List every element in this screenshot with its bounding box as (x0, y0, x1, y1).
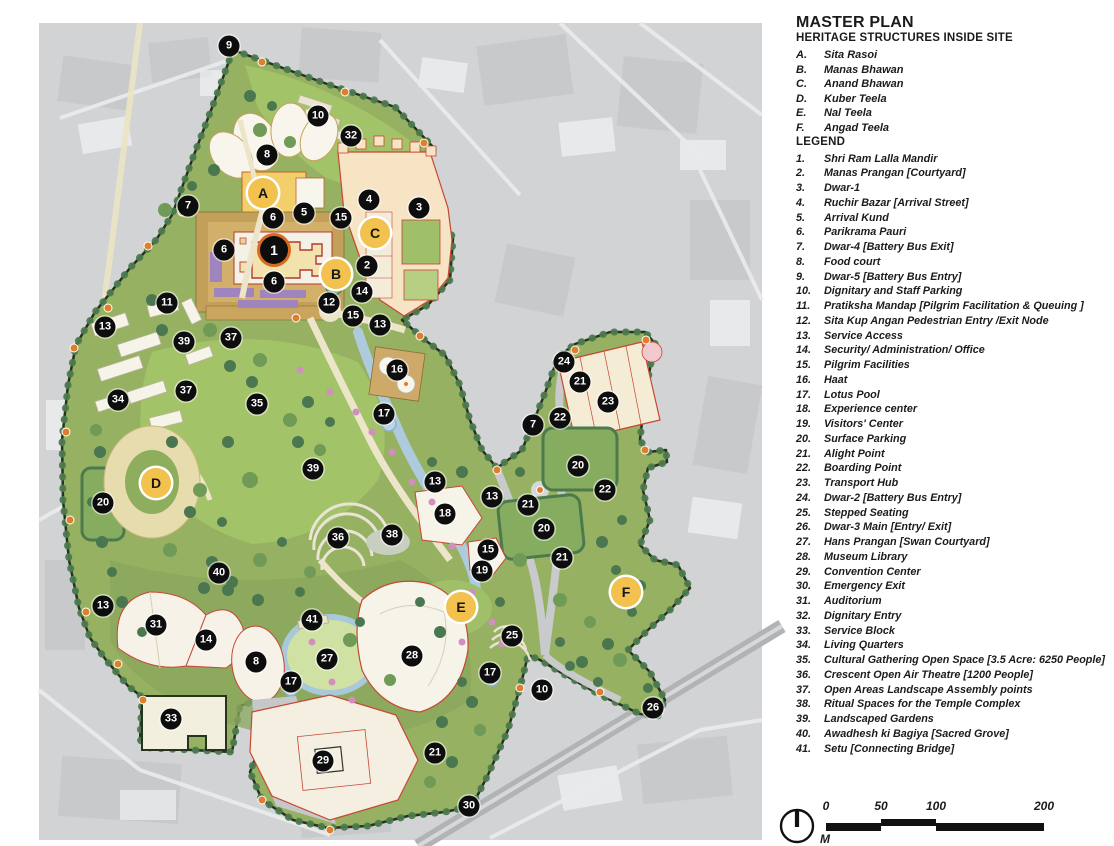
heritage-list: A. Sita Rasoi B. Manas Bhawan C. Anand B… (796, 48, 1114, 136)
legend-item: 17. Lotus Pool (796, 388, 1114, 403)
legend-item: 30. Emergency Exit (796, 579, 1114, 594)
map-marker: 32 (341, 126, 362, 147)
map-marker: 12 (319, 293, 340, 314)
legend-item: 16. Haat (796, 373, 1114, 388)
map-marker: 35 (247, 394, 268, 415)
legend-item: 38. Ritual Spaces for the Temple Complex (796, 697, 1114, 712)
legend-item: 2. Manas Prangan [Courtyard] (796, 166, 1114, 181)
map-marker: 25 (502, 626, 523, 647)
north-arrow-icon (777, 804, 817, 844)
master-plan-drawing (0, 0, 790, 846)
map-marker: 6 (214, 240, 235, 261)
map-marker: 39 (174, 332, 195, 353)
legend-item: 28. Museum Library (796, 550, 1114, 565)
map-marker: 24 (554, 352, 575, 373)
legend-list: 1. Shri Ram Lalla Mandir 2. Manas Pranga… (796, 152, 1114, 757)
legend-item: 21. Alight Point (796, 447, 1114, 462)
map-marker: B (321, 259, 351, 289)
map-marker: E (446, 592, 476, 622)
legend-item: 10. Dignitary and Staff Parking (796, 284, 1114, 299)
map-marker: 14 (196, 630, 217, 651)
map-marker: 2 (357, 256, 378, 277)
scale-tick-label: 0 (823, 799, 830, 813)
map-marker: 15 (331, 208, 352, 229)
map-marker: 19 (472, 561, 493, 582)
map-marker: 27 (317, 649, 338, 670)
legend-item: 14. Security/ Administration/ Office (796, 343, 1114, 358)
legend-item: 32. Dignitary Entry (796, 609, 1114, 624)
scale-tick-label: 100 (926, 799, 946, 813)
legend-item: 8. Food court (796, 255, 1114, 270)
map-marker: 8 (257, 145, 278, 166)
legend-item: 25. Stepped Seating (796, 506, 1114, 521)
legend-item: 34. Living Quarters (796, 638, 1114, 653)
scale-bar: 050100200 M (826, 799, 1056, 845)
heritage-heading: HERITAGE STRUCTURES INSIDE SITE (796, 32, 1114, 44)
map-marker: 36 (328, 528, 349, 549)
legend-item: 27. Hans Prangan [Swan Courtyard] (796, 535, 1114, 550)
heritage-section: HERITAGE STRUCTURES INSIDE SITE A. Sita … (796, 32, 1114, 136)
map-marker: 15 (478, 540, 499, 561)
map-marker: 6 (263, 208, 284, 229)
legend-item: 40. Awadhesh ki Bagiya [Sacred Grove] (796, 727, 1114, 742)
legend-item: 13. Service Access (796, 329, 1114, 344)
service-block (142, 696, 226, 750)
legend-item: 18. Experience center (796, 402, 1114, 417)
legend-section: LEGEND 1. Shri Ram Lalla Mandir 2. Manas… (796, 136, 1114, 757)
map-marker: 20 (534, 519, 555, 540)
map-marker: 20 (568, 456, 589, 477)
map-marker: 15 (343, 306, 364, 327)
map-marker: 18 (435, 504, 456, 525)
heritage-item: C. Anand Bhawan (796, 77, 1114, 92)
map-marker: 16 (387, 360, 408, 381)
legend-heading: LEGEND (796, 136, 1114, 148)
map-marker: 20 (93, 493, 114, 514)
map-marker: 31 (146, 615, 167, 636)
legend-item: 12. Sita Kup Angan Pedestrian Entry /Exi… (796, 314, 1114, 329)
map-marker: F (611, 577, 641, 607)
map-marker: 13 (95, 317, 116, 338)
site-map: 9 10 32 8 A 7 4 3 5 6 15 C 1 6 2 B (0, 0, 790, 846)
heritage-item: E. Nal Teela (796, 106, 1114, 121)
legend-item: 3. Dwar-1 (796, 181, 1114, 196)
map-marker: 21 (518, 495, 539, 516)
map-marker: 11 (157, 293, 178, 314)
legend-item: 24. Dwar-2 [Battery Bus Entry] (796, 491, 1114, 506)
legend-item: 23. Transport Hub (796, 476, 1114, 491)
map-marker: 8 (246, 652, 267, 673)
heritage-item: F. Angad Teela (796, 121, 1114, 136)
map-marker: 17 (281, 672, 302, 693)
legend-item: 36. Crescent Open Air Theatre [1200 Peop… (796, 668, 1114, 683)
map-marker: 7 (178, 196, 199, 217)
legend-item: 19. Visitors' Center (796, 417, 1114, 432)
map-marker: 6 (264, 272, 285, 293)
map-marker: 17 (480, 663, 501, 684)
legend-item: 20. Surface Parking (796, 432, 1114, 447)
map-marker: 13 (482, 487, 503, 508)
scale-bar-segments (826, 818, 1048, 832)
legend-item: 33. Service Block (796, 624, 1114, 639)
map-marker: 5 (294, 203, 315, 224)
scale-tick-label: 200 (1034, 799, 1054, 813)
map-marker: C (360, 218, 390, 248)
map-marker: 22 (595, 480, 616, 501)
heritage-item: A. Sita Rasoi (796, 48, 1114, 63)
legend-item: 5. Arrival Kund (796, 211, 1114, 226)
legend-item: 9. Dwar-5 [Battery Bus Entry] (796, 270, 1114, 285)
legend-panel: MASTER PLAN HERITAGE STRUCTURES INSIDE S… (796, 14, 1114, 756)
map-marker: A (248, 178, 278, 208)
map-marker: D (141, 468, 171, 498)
map-marker: 40 (209, 563, 230, 584)
map-marker: 17 (374, 404, 395, 425)
map-marker: 23 (598, 392, 619, 413)
map-marker: 21 (570, 372, 591, 393)
scale-unit: M (820, 832, 830, 846)
map-marker: 33 (161, 709, 182, 730)
map-marker: 4 (359, 190, 380, 211)
legend-item: 22. Boarding Point (796, 461, 1114, 476)
map-marker: 1 (260, 236, 288, 264)
map-marker: 3 (409, 198, 430, 219)
legend-item: 15. Pilgrim Facilities (796, 358, 1114, 373)
map-marker: 21 (552, 548, 573, 569)
legend-item: 1. Shri Ram Lalla Mandir (796, 152, 1114, 167)
legend-item: 26. Dwar-3 Main [Entry/ Exit] (796, 520, 1114, 535)
legend-item: 31. Auditorium (796, 594, 1114, 609)
map-marker: 10 (532, 680, 553, 701)
map-marker: 37 (221, 328, 242, 349)
map-marker: 41 (302, 610, 323, 631)
legend-item: 6. Parikrama Pauri (796, 225, 1114, 240)
map-marker: 39 (303, 459, 324, 480)
map-marker: 9 (219, 36, 240, 57)
legend-item: 39. Landscaped Gardens (796, 712, 1114, 727)
map-marker: 13 (425, 472, 446, 493)
map-marker: 7 (523, 415, 544, 436)
map-marker: 13 (93, 596, 114, 617)
map-marker: 38 (382, 525, 403, 546)
heritage-item: B. Manas Bhawan (796, 63, 1114, 78)
legend-item: 41. Setu [Connecting Bridge] (796, 742, 1114, 757)
page-title: MASTER PLAN (796, 14, 1114, 32)
heritage-item: D. Kuber Teela (796, 92, 1114, 107)
legend-item: 4. Ruchir Bazar [Arrival Street] (796, 196, 1114, 211)
legend-item: 35. Cultural Gathering Open Space [3.5 A… (796, 653, 1114, 668)
map-marker: 28 (402, 646, 423, 667)
map-marker: 14 (352, 282, 373, 303)
legend-item: 29. Convention Center (796, 565, 1114, 580)
map-marker: 13 (370, 315, 391, 336)
scale-tick-label: 50 (874, 799, 887, 813)
legend-item: 37. Open Areas Landscape Assembly points (796, 683, 1114, 698)
map-marker: 34 (108, 390, 129, 411)
map-marker: 37 (176, 381, 197, 402)
legend-item: 11. Pratiksha Mandap [Pilgrim Facilitati… (796, 299, 1114, 314)
map-marker: 30 (459, 796, 480, 817)
map-marker: 26 (643, 698, 664, 719)
map-marker: 21 (425, 743, 446, 764)
map-marker: 10 (308, 106, 329, 127)
map-marker: 29 (313, 751, 334, 772)
map-marker: 22 (550, 408, 571, 429)
legend-item: 7. Dwar-4 [Battery Bus Exit] (796, 240, 1114, 255)
